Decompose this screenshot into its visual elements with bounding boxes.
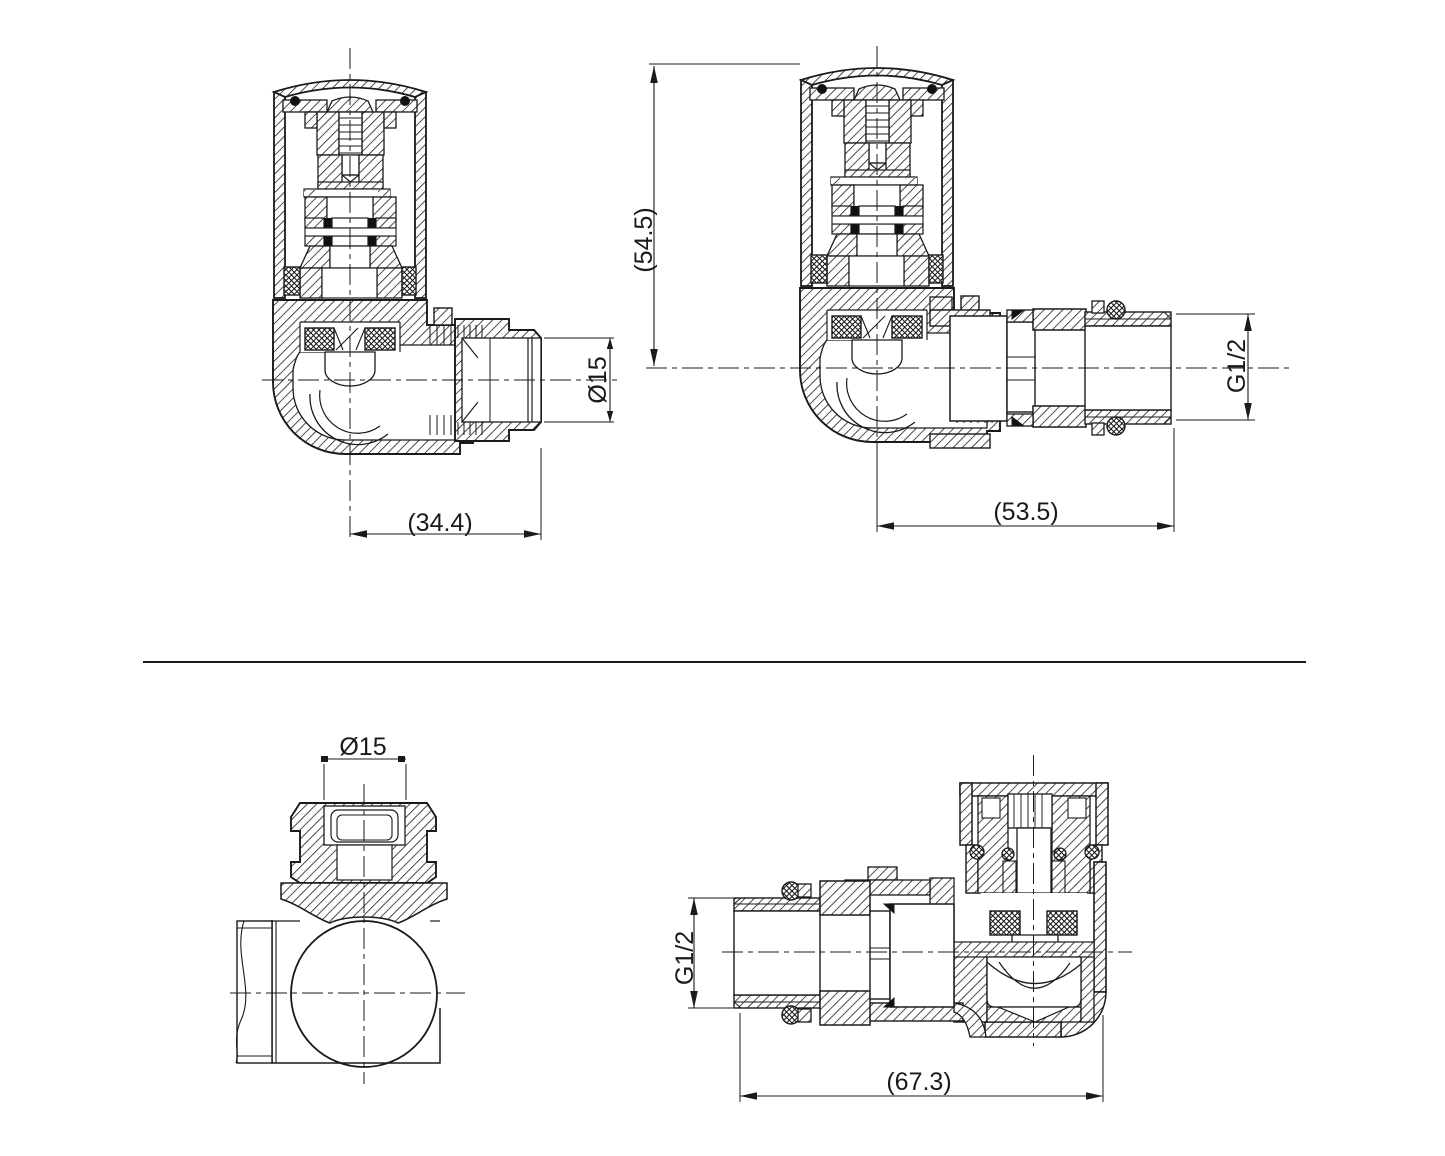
svg-text:Ø15: Ø15 <box>339 733 386 761</box>
svg-text:(67.3): (67.3) <box>886 1068 951 1096</box>
svg-text:(34.4): (34.4) <box>407 509 472 537</box>
svg-text:G1/2: G1/2 <box>671 931 699 985</box>
svg-text:(54.5): (54.5) <box>630 207 658 272</box>
svg-text:(53.5): (53.5) <box>993 498 1058 526</box>
svg-text:Ø15: Ø15 <box>584 356 612 403</box>
svg-text:G1/2: G1/2 <box>1223 339 1251 393</box>
